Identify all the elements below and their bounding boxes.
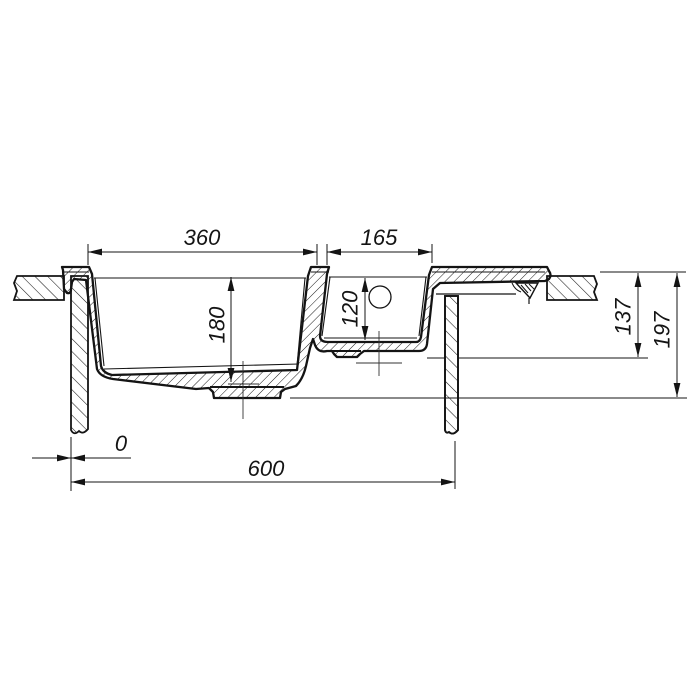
dim-label-0: 0 [115,431,128,456]
dim-label-180: 180 [205,306,230,343]
dim-label-165: 165 [361,225,398,250]
technical-drawing-canvas: 360 165 180 120 137 197 0 600 [0,0,700,700]
countertop-left [14,276,64,300]
cabinet-leg-left [71,276,88,433]
cabinet-leg-right-hatch [445,296,458,434]
dim-label-197: 197 [650,311,675,348]
dim-label-600: 600 [248,456,285,481]
sink-section-drawing: 360 165 180 120 137 197 0 600 [0,0,700,700]
dim-label-137: 137 [611,298,636,335]
dim-label-360: 360 [184,225,221,250]
countertop-right [547,276,597,300]
dim-label-120: 120 [338,290,363,327]
